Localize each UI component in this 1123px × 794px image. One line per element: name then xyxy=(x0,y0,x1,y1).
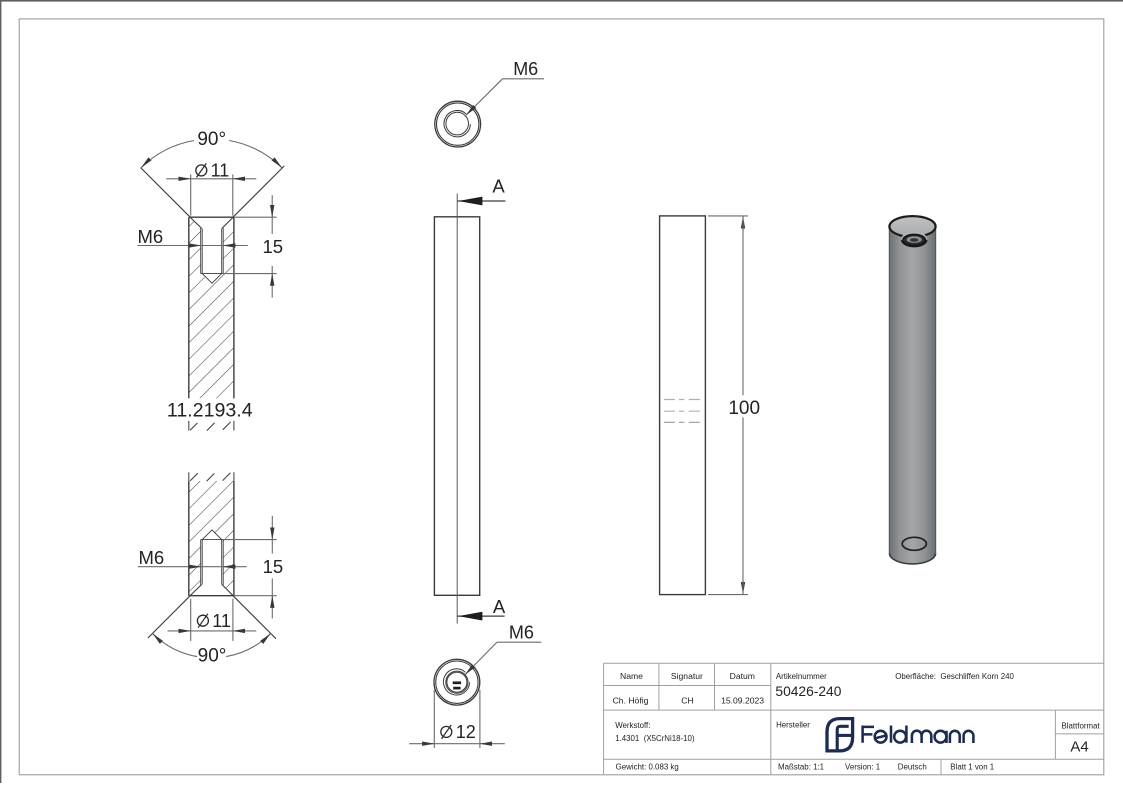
svg-text:15: 15 xyxy=(263,556,284,577)
svg-text:15.09.2023: 15.09.2023 xyxy=(721,696,764,706)
svg-text:Name: Name xyxy=(620,671,643,681)
svg-text:M6: M6 xyxy=(513,59,538,79)
svg-text:Gewicht: 0.083 kg: Gewicht: 0.083 kg xyxy=(616,762,679,771)
svg-text:15: 15 xyxy=(263,236,284,257)
svg-text:Deutsch: Deutsch xyxy=(898,762,927,771)
svg-text:M6: M6 xyxy=(139,547,165,568)
svg-text:Blatt 1 von 1: Blatt 1 von 1 xyxy=(950,762,994,771)
svg-text:A: A xyxy=(492,176,505,197)
svg-text:CH: CH xyxy=(681,696,693,706)
svg-text:90°: 90° xyxy=(198,646,227,667)
svg-text:M6: M6 xyxy=(138,226,164,247)
svg-text:A: A xyxy=(493,596,506,617)
svg-text:Ch. Höfig: Ch. Höfig xyxy=(613,696,649,706)
svg-text:12: 12 xyxy=(456,722,476,742)
svg-text:1.4301 (X5CrNi18-10): 1.4301 (X5CrNi18-10) xyxy=(615,734,695,743)
svg-text:100: 100 xyxy=(728,398,760,419)
svg-text:11: 11 xyxy=(211,161,230,181)
svg-text:11: 11 xyxy=(212,611,231,631)
svg-text:Hersteller: Hersteller xyxy=(776,721,810,730)
svg-text:Oberfläche: Geschliffen Korn: Oberfläche: Geschliffen Korn 240 xyxy=(895,672,1014,681)
svg-text:Version: 1: Version: 1 xyxy=(845,762,880,771)
svg-text:Maßstab: 1:1: Maßstab: 1:1 xyxy=(778,762,824,771)
svg-text:Artikelnummer: Artikelnummer xyxy=(776,672,827,681)
svg-text:Blattformat: Blattformat xyxy=(1062,721,1101,730)
svg-text:90°: 90° xyxy=(197,129,226,150)
svg-text:A4: A4 xyxy=(1070,738,1088,755)
svg-text:Werkstoff:: Werkstoff: xyxy=(615,721,650,730)
svg-text:Signatur: Signatur xyxy=(671,671,703,681)
svg-text:Datum: Datum xyxy=(730,671,755,681)
svg-text:M6: M6 xyxy=(509,623,534,643)
svg-text:11.2193.4: 11.2193.4 xyxy=(167,400,253,422)
svg-text:50426-240: 50426-240 xyxy=(775,684,841,699)
